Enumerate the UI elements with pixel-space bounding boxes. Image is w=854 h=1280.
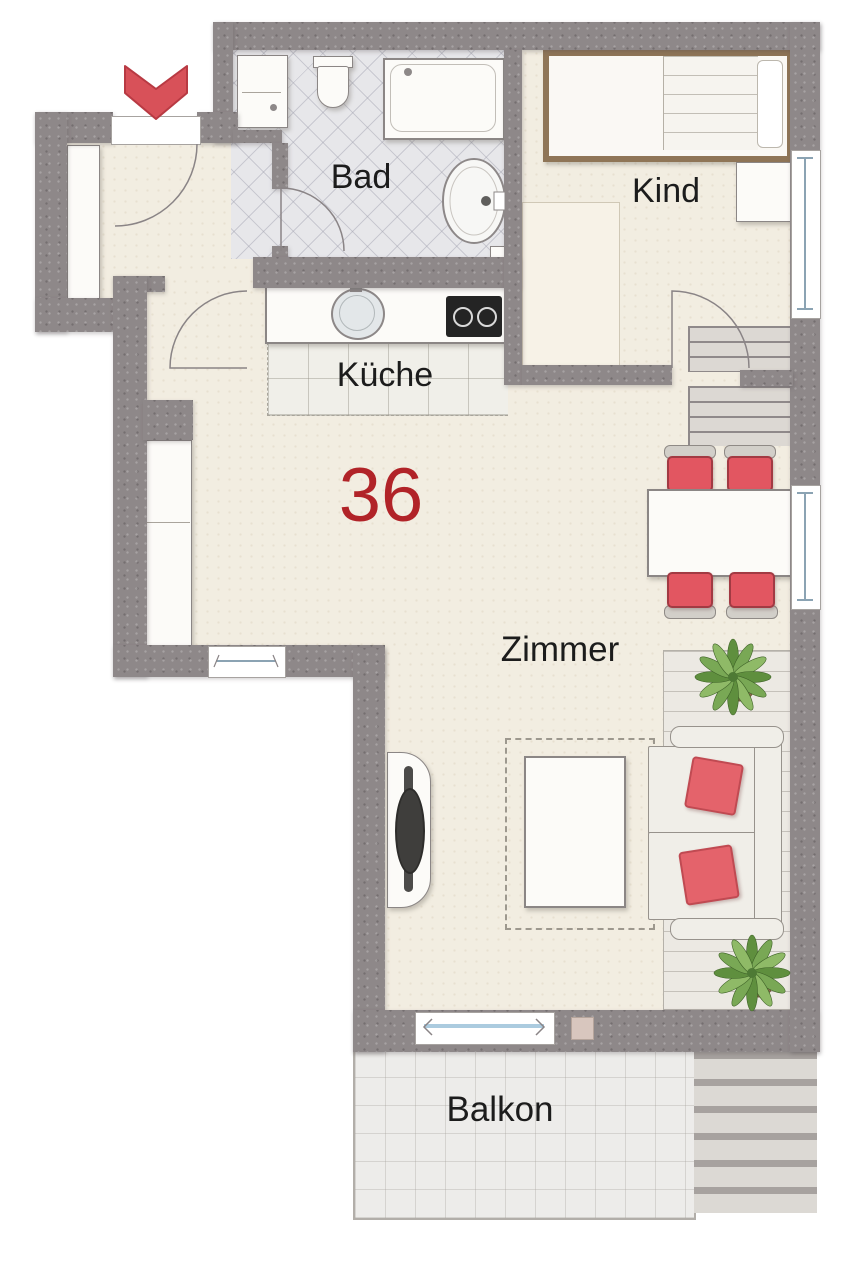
sofa-pillow bbox=[678, 844, 740, 906]
room-label-living: Zimmer bbox=[493, 632, 627, 667]
hall-wardrobe bbox=[67, 145, 100, 299]
dining-table bbox=[647, 489, 794, 577]
child-room-rug bbox=[522, 202, 620, 372]
room-label-kitchen: Küche bbox=[325, 358, 445, 392]
washing-machine-detail bbox=[242, 92, 281, 93]
coffee-table bbox=[524, 756, 626, 908]
wall bbox=[233, 130, 282, 143]
wall bbox=[35, 298, 122, 332]
stove-burner bbox=[453, 307, 473, 327]
floor-plan: Bad Kind Küche 36 Zimmer Balkon bbox=[0, 0, 854, 1280]
kitchen-sink-inner bbox=[339, 295, 375, 331]
balcony-floor bbox=[353, 1052, 696, 1220]
unit-number: 36 bbox=[325, 458, 437, 534]
dining-chair bbox=[664, 448, 716, 490]
room-label-balcony: Balkon bbox=[433, 1092, 567, 1127]
chair-seat bbox=[727, 456, 773, 492]
dining-chair bbox=[726, 574, 778, 616]
tv bbox=[395, 788, 425, 874]
sofa-armrest bbox=[670, 726, 784, 748]
chair-seat bbox=[667, 572, 713, 608]
bed-pillow bbox=[757, 60, 783, 148]
wall bbox=[213, 22, 820, 50]
toilet-bowl bbox=[317, 66, 349, 108]
entrance-door-opening bbox=[111, 116, 201, 145]
wall bbox=[522, 365, 672, 385]
wall bbox=[353, 648, 385, 1052]
room-label-bathroom: Bad bbox=[300, 160, 422, 194]
wall-pier bbox=[143, 400, 193, 440]
cabinet-divider bbox=[146, 522, 190, 523]
chair-seat bbox=[667, 456, 713, 492]
bed-blanket bbox=[663, 56, 758, 150]
stove-burner bbox=[477, 307, 497, 327]
outdoor-stairs bbox=[694, 1052, 817, 1213]
stairs-lower-flight bbox=[688, 386, 792, 446]
nightstand bbox=[736, 162, 792, 222]
wall-stair-stub bbox=[740, 370, 793, 386]
entrance-arrow-icon bbox=[125, 66, 187, 119]
sofa-backrest bbox=[754, 734, 782, 932]
sofa-pillow bbox=[684, 756, 744, 816]
wall bbox=[253, 257, 520, 288]
balcony-door bbox=[415, 1012, 555, 1045]
dining-chair bbox=[724, 448, 776, 490]
wall bbox=[197, 112, 238, 143]
left-wall-cabinet bbox=[145, 440, 192, 647]
wall bbox=[504, 50, 522, 385]
wall-column bbox=[571, 1017, 594, 1040]
chair-seat bbox=[729, 572, 775, 608]
bathtub-drain bbox=[404, 68, 412, 76]
window bbox=[791, 485, 821, 610]
wall bbox=[272, 143, 288, 189]
washing-machine-knob bbox=[270, 104, 277, 111]
sofa-armrest bbox=[670, 918, 784, 940]
window bbox=[791, 150, 821, 319]
window bbox=[208, 646, 286, 678]
wall bbox=[113, 276, 147, 677]
dining-chair bbox=[664, 574, 716, 616]
room-label-child: Kind bbox=[601, 174, 731, 208]
stairs-upper-flight bbox=[688, 326, 792, 372]
